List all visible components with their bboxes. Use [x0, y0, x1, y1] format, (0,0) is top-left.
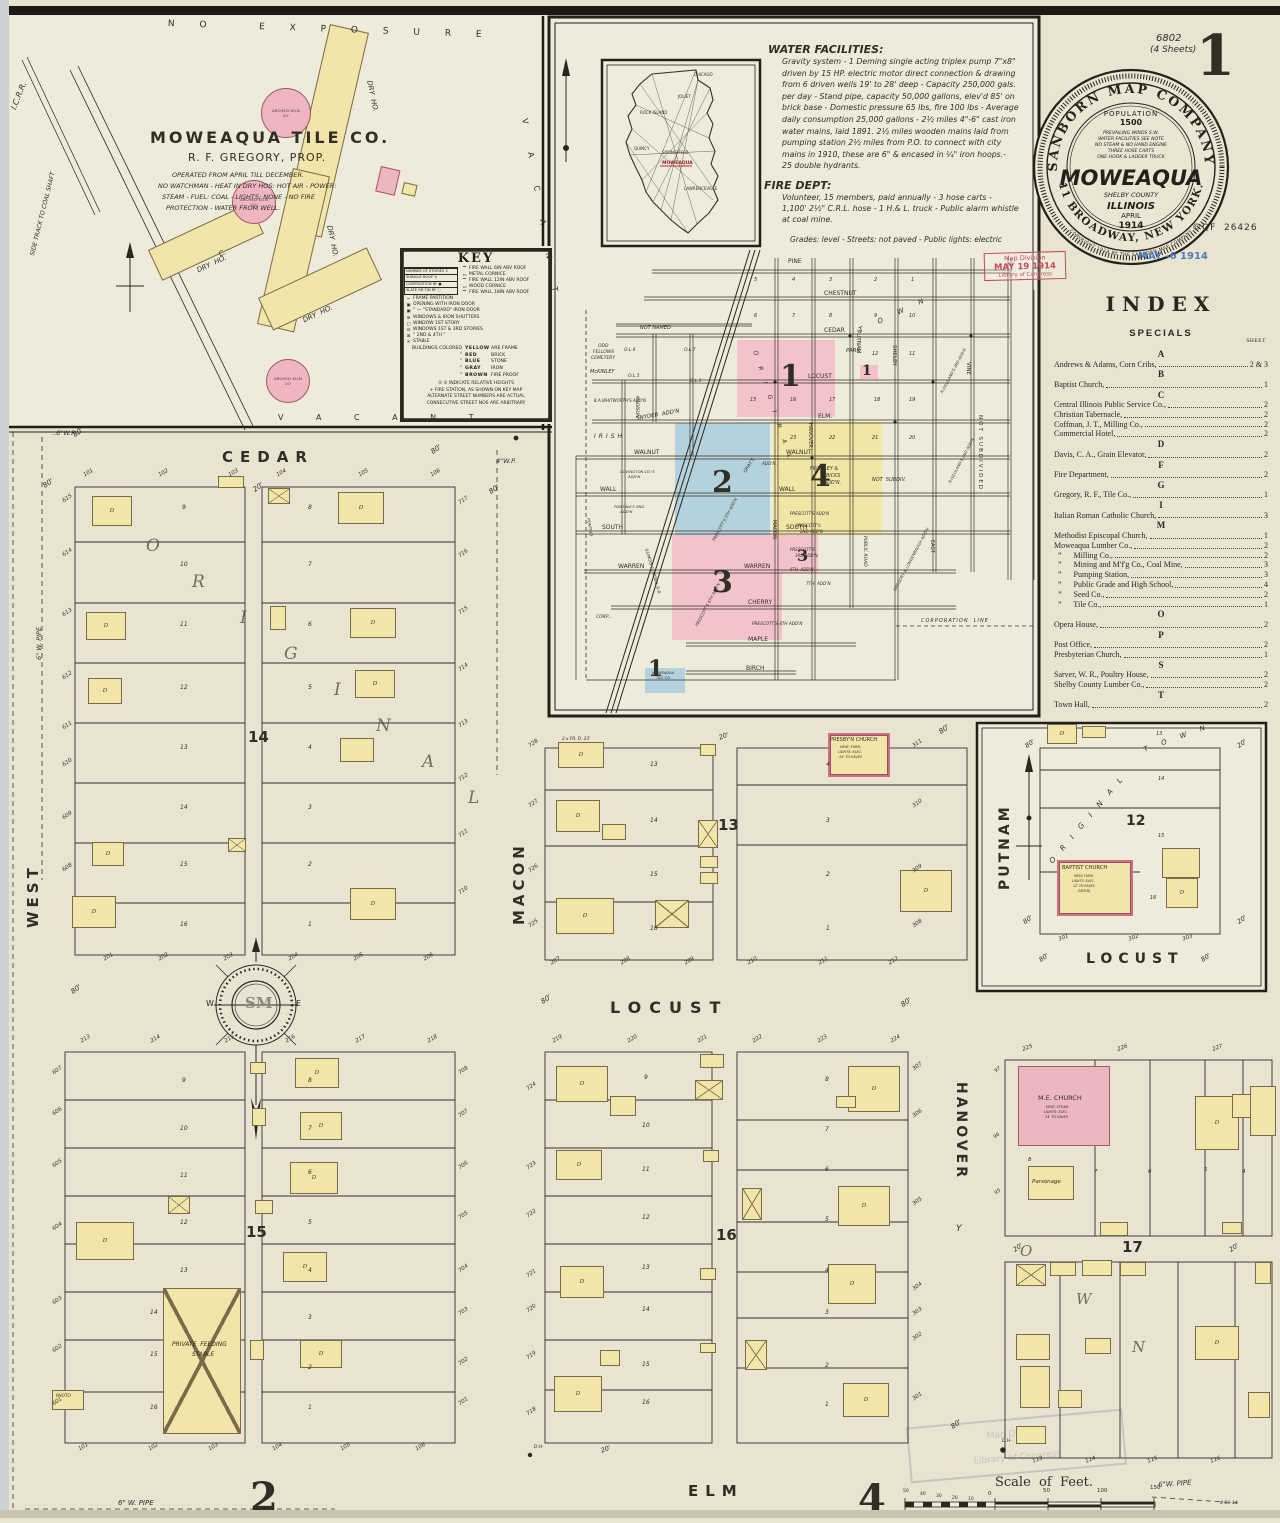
map-label: 11	[180, 622, 188, 628]
index-entry: Andrews & Adams, Corn Cribs,2 & 3	[1054, 360, 1268, 370]
index-sheet-col-header: SHEET	[1246, 338, 1266, 344]
map-label: 6802	[1156, 34, 1181, 44]
map-label: 606	[52, 1107, 64, 1118]
arched-kiln: ARCHED KILN10'	[266, 359, 310, 403]
index-entry-sheet: 2	[1264, 670, 1268, 680]
map-label: 5	[1204, 1168, 1208, 1174]
map-label: 307	[912, 1062, 924, 1073]
map-label: I	[334, 682, 341, 699]
water-facilities-notes: Gravity system - 1 Deming single acting …	[782, 56, 1019, 172]
building: D	[72, 896, 116, 928]
map-label: 20'	[718, 732, 730, 742]
index-entry-sheet: 2	[1264, 420, 1268, 430]
map-label: Scale of Feet.	[995, 1476, 1093, 1489]
index-entry-sheet: 4	[1264, 580, 1268, 590]
map-label: 217	[355, 1035, 367, 1045]
building: D	[300, 1340, 342, 1368]
building: D	[355, 670, 395, 698]
map-label: 116	[1210, 1456, 1222, 1465]
building: D	[88, 678, 122, 704]
map-label: 106	[415, 1443, 427, 1453]
water-note-line: Gravity system - 1 Deming single acting …	[782, 56, 1019, 68]
map-label: 717	[458, 496, 470, 507]
index-entry-sheet: 2	[1264, 640, 1268, 650]
map-label: 15	[150, 1352, 158, 1358]
map-label: 9	[182, 1078, 186, 1084]
map-label: 203	[223, 953, 235, 963]
map-label: 20'	[600, 1445, 612, 1455]
seal-note: WATER FACILITIES SEE NOTE	[1098, 136, 1164, 142]
kiln-height: 10'	[285, 381, 291, 386]
map-label: 80'	[900, 997, 913, 1009]
building: D	[92, 842, 124, 866]
map-label: 101	[83, 469, 95, 479]
building-label: D	[110, 508, 114, 514]
map-label: 95	[994, 1188, 1002, 1196]
map-label: 10	[180, 1126, 188, 1132]
index-entry: Methodist Episcopal Church,1	[1054, 531, 1268, 541]
index-leader-dots	[1134, 548, 1262, 549]
building-label: D	[580, 1279, 584, 1285]
building-label: D	[1215, 1120, 1219, 1126]
index-letter: D	[1054, 439, 1268, 450]
building: D	[290, 1162, 338, 1194]
map-label: 96	[993, 1132, 1001, 1140]
map-label: 20'	[1228, 1242, 1240, 1253]
map-label: 20'	[1012, 1242, 1024, 1253]
index-entry-name: ” Tile Co.,	[1054, 600, 1101, 610]
sheet3-area-ext	[782, 535, 818, 573]
map-label: 212	[888, 957, 900, 967]
map-label: 104	[272, 1443, 284, 1453]
map-label: 5	[308, 1220, 312, 1226]
map-label: WEST	[26, 864, 41, 928]
index-entry-name: Sarver, W. R., Poultry House,	[1054, 670, 1149, 680]
building-label: D	[103, 688, 107, 694]
building-label: D	[92, 909, 96, 915]
map-label: 210	[747, 957, 759, 967]
building	[168, 1196, 190, 1214]
map-label: 101	[78, 1443, 90, 1453]
map-label: 703	[458, 1307, 470, 1318]
building: D	[828, 1264, 876, 1304]
map-label: 6	[1148, 1170, 1152, 1176]
building	[700, 1268, 716, 1280]
sheet2-area	[675, 423, 770, 537]
building	[1050, 1262, 1076, 1276]
index-entry-name: Town Hall,	[1054, 700, 1090, 710]
map-label: 11	[180, 1173, 188, 1179]
water-note-line: from 6 driven wells 19' to 28' deep - Ca…	[782, 79, 1019, 91]
building-label: D	[583, 913, 587, 919]
map-label: 712	[458, 773, 470, 784]
map-label: 6	[825, 1167, 829, 1173]
map-label: 2	[825, 1363, 829, 1369]
map-label: 213	[80, 1035, 92, 1045]
building-label: D	[359, 505, 363, 511]
index-entry-sheet: 2	[1264, 470, 1268, 480]
key-color-word: BROWN	[465, 373, 491, 380]
map-label: 225	[1022, 1044, 1034, 1053]
building-label: D	[1180, 890, 1184, 896]
map-label: 11	[642, 1167, 650, 1173]
index-letter: T	[1054, 690, 1268, 701]
key-color-pre: ”	[404, 359, 465, 366]
map-label: 40	[920, 1493, 926, 1498]
index-entry-sheet: 2	[1264, 410, 1268, 420]
map-label: 706	[458, 1161, 470, 1172]
building	[700, 856, 718, 868]
map-label: 214	[150, 1035, 162, 1045]
building	[700, 872, 718, 884]
map-label: 10	[968, 1498, 974, 1503]
map-label: 2 x FR. D. 23'	[562, 737, 590, 741]
map-label: 80'	[938, 724, 951, 736]
map-label: 211	[818, 957, 830, 967]
map-label: 20	[952, 1497, 958, 1502]
index-entry-sheet: 2	[1264, 590, 1268, 600]
building: D	[556, 1150, 602, 1180]
illinois-inset-map: CHICAGO ROCK ISLAND JOLIET SPRINGFIELD Q…	[600, 58, 762, 258]
key-color-meaning: FIRE PROOF	[491, 373, 519, 380]
sheet1-area-small	[860, 365, 878, 379]
map-label: 8	[825, 1077, 829, 1083]
map-label: 720	[526, 1304, 538, 1315]
water-note-line: pumping station 2½ miles from P.O. to co…	[782, 137, 1019, 149]
building: D	[1166, 878, 1198, 908]
map-label: 105	[358, 469, 370, 479]
building	[1028, 1166, 1074, 1200]
map-label: 303	[912, 1307, 924, 1318]
building-label: D	[1060, 731, 1064, 737]
map-label: Y	[956, 1225, 962, 1234]
building-label: D	[576, 813, 580, 819]
map-label: 150	[1150, 1486, 1161, 1492]
index-leader-dots	[1131, 577, 1262, 578]
sheet3-area	[672, 535, 782, 640]
map-label: 6" W. PIPE	[36, 627, 43, 660]
building	[1058, 1390, 1082, 1408]
building: D	[556, 1066, 608, 1102]
map-label: L	[468, 790, 479, 807]
map-label: I	[240, 610, 247, 627]
map-label: 105	[340, 1443, 352, 1453]
building: D	[1047, 724, 1077, 744]
index-entry-name: Moweaqua Lumber Co.,	[1054, 541, 1132, 551]
map-label: 102	[158, 469, 170, 479]
building-label: D	[106, 851, 110, 857]
inset-city: SPRINGFIELD	[662, 150, 688, 155]
index-entry-sheet: 2	[1264, 620, 1268, 630]
map-label: 102	[148, 1443, 160, 1453]
building	[602, 824, 626, 840]
building-label: D	[319, 1351, 323, 1357]
index-leader-dots	[1175, 587, 1262, 588]
map-label: 608	[62, 863, 74, 874]
key-color-row: ”BROWNFIRE PROOF	[404, 373, 548, 380]
key-row-text: FIRE WALL 18IN ABV ROOF	[469, 290, 529, 296]
map-label: 115	[1147, 1456, 1159, 1465]
building	[1085, 1338, 1111, 1354]
map-label: 0	[988, 1492, 992, 1498]
map-label: 202	[158, 953, 170, 963]
map-label: 221	[697, 1035, 709, 1045]
index-entry: ” Mining and M'f'g Co., Coal Mine,3	[1054, 560, 1268, 570]
index-entry-sheet: 1	[1264, 531, 1268, 541]
index-entry-name: Italian Roman Catholic Church,	[1054, 511, 1156, 521]
building	[1162, 848, 1200, 878]
building: D	[554, 1376, 602, 1412]
building	[250, 1062, 266, 1074]
map-label: 15	[642, 1362, 650, 1368]
seal-state: ILLINOIS	[1107, 201, 1155, 212]
map-label: A	[422, 754, 434, 771]
index-entry-name: Fire Department,	[1054, 470, 1109, 480]
building	[698, 820, 718, 848]
index-leader-dots	[1145, 426, 1262, 427]
map-label: MACON	[512, 842, 527, 925]
map-label: 50	[1043, 1489, 1050, 1495]
index-entry: ” Pumping Station,3	[1054, 570, 1268, 580]
map-label: 14	[248, 730, 269, 745]
index-leader-dots	[1124, 417, 1262, 418]
building	[268, 488, 290, 504]
index-entry: Presbyterian Church,1	[1054, 650, 1268, 660]
building	[742, 1188, 762, 1220]
sanborn-map-sheet: { "sheet": {"plate":"6802","sheets_note"…	[0, 0, 1280, 1518]
fire-note-line: at coal mine.	[782, 214, 1019, 225]
key-color-meaning: ARE FRAME	[491, 346, 518, 353]
building-label: D	[576, 1391, 580, 1397]
map-label: 20'	[252, 482, 265, 494]
key-symbol: ▔	[460, 290, 469, 296]
map-label: 305	[912, 1197, 924, 1208]
seal-month: APRIL	[1121, 212, 1141, 220]
map-label: 15	[180, 862, 188, 868]
map-label: 224	[890, 1035, 902, 1045]
index-entry: Sarver, W. R., Poultry House,2	[1054, 670, 1268, 680]
building-label: D	[872, 1086, 876, 1092]
index-entry-name: Gregory, R. F., Tile Co.,	[1054, 490, 1131, 500]
index-leader-dots	[1100, 627, 1262, 628]
key-note: ⑤ ② INDICATE RELATIVE HEIGHTS	[404, 381, 548, 388]
building	[1255, 1262, 1271, 1284]
map-label: 607	[52, 1066, 64, 1077]
town-key-map	[556, 250, 1040, 715]
building	[610, 1096, 636, 1116]
map-label: 705	[458, 1211, 470, 1222]
building-label: D	[580, 1081, 584, 1087]
index-entry: Italian Roman Catholic Church,3	[1054, 511, 1268, 521]
map-label: 2	[308, 862, 312, 868]
key-row: ✕STABLE	[404, 339, 548, 345]
map-label: 80'	[70, 984, 83, 996]
index-entry-sheet: 2 & 3	[1250, 360, 1268, 370]
map-label: 14	[180, 805, 188, 811]
map-label: 10	[642, 1123, 650, 1129]
map-label: 613	[62, 608, 74, 619]
index-letter: C	[1054, 390, 1268, 401]
building: D	[838, 1186, 890, 1226]
index-entry: Baptist Church,1	[1054, 380, 1268, 390]
building	[163, 1288, 241, 1434]
building	[1016, 1264, 1046, 1286]
church-building	[1057, 860, 1133, 916]
water-note-line: per day - Stand pipe, capacity 50,000 ga…	[782, 91, 1019, 103]
map-label: 7	[308, 562, 312, 568]
map-label: ..6"W.P...	[52, 430, 80, 437]
seal-city: MOWEAQUA	[1060, 166, 1203, 190]
fire-dept-notes: Volunteer, 15 members, paid annually - 3…	[782, 192, 1019, 225]
index-leader-dots	[1106, 387, 1262, 388]
map-label: 3	[308, 1315, 312, 1321]
building: D	[1195, 1326, 1239, 1360]
map-label: 16	[642, 1400, 650, 1406]
index-leader-dots	[1151, 677, 1262, 678]
index-entry: ” Public Grade and High School,4	[1054, 580, 1268, 590]
seal-year: 1914	[1118, 221, 1143, 231]
map-label: 13	[180, 745, 188, 751]
map-label: 9	[182, 505, 186, 511]
index-entry-sheet: 1	[1264, 650, 1268, 660]
map-label: R	[192, 574, 205, 591]
map-label: 304	[912, 1282, 924, 1293]
key-color-pre: ”	[404, 366, 465, 373]
map-label: 708	[458, 1066, 470, 1077]
map-label: 16	[716, 1228, 737, 1243]
map-label: 713	[458, 719, 470, 730]
index-entry-name: Coffman, J. T., Milling Co.,	[1054, 420, 1143, 430]
map-label: 3	[826, 818, 830, 824]
map-label: 209	[684, 957, 696, 967]
index-letter: A	[1054, 349, 1268, 360]
index-entry-name: ” Pumping Station,	[1054, 570, 1129, 580]
seal-population-label: POPULATION	[1104, 110, 1158, 118]
seal-note: ONE HOOK & LADDER TRUCK	[1097, 154, 1166, 160]
map-label: 310	[912, 799, 924, 810]
map-label: 719	[526, 1351, 538, 1362]
index-leader-dots	[1106, 597, 1262, 598]
map-label: 223	[817, 1035, 829, 1045]
key-legend: KEY NUMBER OF STORIES 3SHINGLE ROOF ✕COM…	[400, 248, 552, 422]
index-panel: INDEX SPECIALS SHEET AAndrews & Adams, C…	[1050, 292, 1272, 710]
index-entry-sheet: 2	[1264, 450, 1268, 460]
index-entry-sheet: 3	[1264, 560, 1268, 570]
key-notes: ⑤ ② INDICATE RELATIVE HEIGHTS+ FIRE STAT…	[404, 381, 548, 408]
map-label: 4	[308, 745, 312, 751]
inset-city: QUINCY	[634, 146, 650, 151]
map-label: 14	[642, 1307, 650, 1313]
building	[52, 1390, 84, 1410]
building-label: D	[373, 681, 377, 687]
sanborn-seal: SANBORN MAP COMPANY. 11 BROADWAY, NEW YO…	[1030, 66, 1232, 268]
map-label: 306	[912, 1109, 924, 1120]
index-entry-sheet: 3	[1264, 511, 1268, 521]
index-entry-name: Davis, C. A., Grain Elevator,	[1054, 450, 1146, 460]
index-entry-name: Baptist Church,	[1054, 380, 1104, 390]
water-note-line: brick base - Domestic pressure 65 lbs, f…	[782, 102, 1019, 114]
seal-note: NO STEAM & NO HAND ENGINE	[1095, 142, 1167, 148]
sheet1-tileco-area	[645, 668, 685, 693]
map-label: 726	[528, 864, 540, 875]
seal-note: PREVAILING WINDS S.W.	[1103, 130, 1159, 136]
water-note-line: mains in 1910, these are 6" & encased in…	[782, 149, 1019, 161]
map-label: 308	[912, 919, 924, 930]
building-label: D	[303, 1264, 307, 1270]
map-label: E	[296, 1000, 301, 1008]
seal-county: SHELBY COUNTY	[1104, 191, 1159, 199]
map-label: 611	[62, 721, 74, 732]
building	[703, 1150, 719, 1162]
map-label: 220	[627, 1035, 639, 1045]
index-letter: P	[1054, 630, 1268, 641]
church-building	[828, 733, 890, 777]
map-label: 724	[526, 1082, 538, 1093]
sheet4-area	[773, 422, 882, 535]
map-label: 206	[423, 953, 435, 963]
map-label: 207	[550, 957, 562, 967]
building: D	[76, 1222, 134, 1260]
index-entry: Post Office,2	[1054, 640, 1268, 650]
map-label: 6"W. PIPE	[1158, 1480, 1192, 1489]
map-label: 100	[1097, 1489, 1108, 1495]
map-label: 215	[224, 1035, 236, 1045]
map-label: 7	[825, 1127, 829, 1133]
arched-kiln: ARCHED KILN10'	[261, 88, 311, 138]
index-entry: Moweaqua Lumber Co.,2	[1054, 541, 1268, 551]
building	[1248, 1392, 1270, 1418]
index-entry-sheet: 2	[1264, 400, 1268, 410]
index-letter: I	[1054, 500, 1268, 511]
map-label: 715	[458, 606, 470, 617]
index-leader-dots	[1111, 477, 1262, 478]
building: D	[556, 898, 614, 934]
map-label: 5	[308, 685, 312, 691]
building: D	[556, 800, 600, 832]
map-label: 728	[528, 739, 540, 750]
index-letter: O	[1054, 609, 1268, 620]
building	[1120, 1262, 1146, 1276]
map-label: 13	[180, 1268, 188, 1274]
map-label: 222	[752, 1035, 764, 1045]
ghost-stamp-line: Library of Congress	[915, 1444, 1120, 1472]
index-entry-name: Methodist Episcopal Church,	[1054, 531, 1148, 541]
index-leader-dots	[1117, 436, 1262, 437]
map-label: W	[206, 1000, 214, 1008]
index-leader-dots	[1146, 687, 1262, 688]
map-label: O	[1020, 1244, 1032, 1259]
map-label: 710	[458, 886, 470, 897]
building: D	[843, 1383, 889, 1417]
inset-town-label: MOWEAQUA	[662, 160, 693, 166]
building	[1082, 1260, 1112, 1276]
map-label: ELM	[688, 1484, 744, 1499]
building-label: D	[924, 888, 928, 894]
building-label: D	[862, 1203, 866, 1209]
index-subtitle: SPECIALS	[1050, 328, 1272, 339]
key-color-pre: BUILDINGS COLORED	[404, 346, 465, 353]
building-label: D	[1215, 1340, 1219, 1346]
index-letter: M	[1054, 520, 1268, 531]
building	[218, 476, 244, 488]
map-label: 1	[308, 1405, 312, 1411]
map-label: 226	[1117, 1044, 1129, 1053]
index-entry-name: Central Illinois Public Service Co.,	[1054, 400, 1166, 410]
map-label: 219	[552, 1035, 564, 1045]
map-label: 8	[308, 505, 312, 511]
map-label: 13	[718, 818, 739, 833]
index-leader-dots	[1148, 457, 1262, 458]
